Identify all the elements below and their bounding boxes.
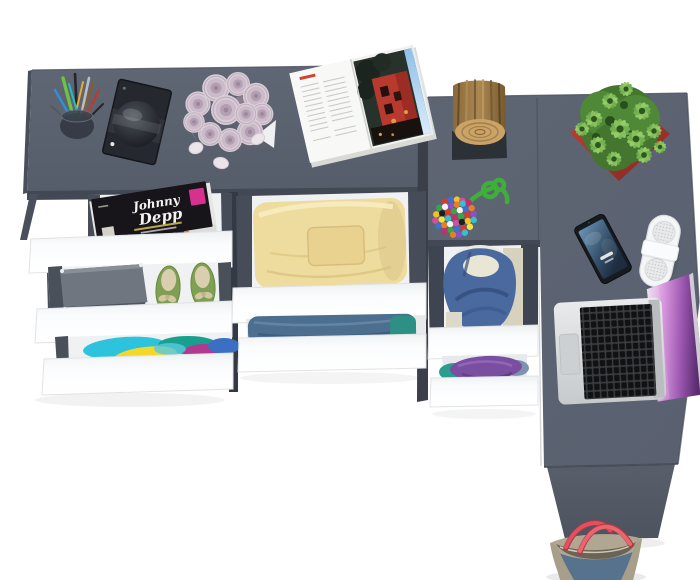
shoe-box: [60, 263, 149, 311]
desk-scene: Johnny Depp: [0, 0, 700, 580]
drawer-front-hoodie: [428, 325, 538, 359]
center-cabinet: [232, 191, 426, 372]
laptop-trackpad: [559, 334, 580, 375]
wood-stool: [452, 80, 507, 160]
laptop-keyboard: [580, 304, 657, 400]
drawer-front-jeans: [238, 334, 426, 372]
blue-hoodie: [443, 245, 523, 332]
magazine-badge-pink: [189, 188, 206, 206]
drawer-front-clothes: [42, 353, 233, 395]
furniture-product-render: Johnny Depp: [0, 0, 700, 580]
yellow-folded-clothes: [253, 197, 408, 288]
right-cabinet: [428, 244, 538, 407]
drawer-front-shirts: [430, 376, 538, 407]
